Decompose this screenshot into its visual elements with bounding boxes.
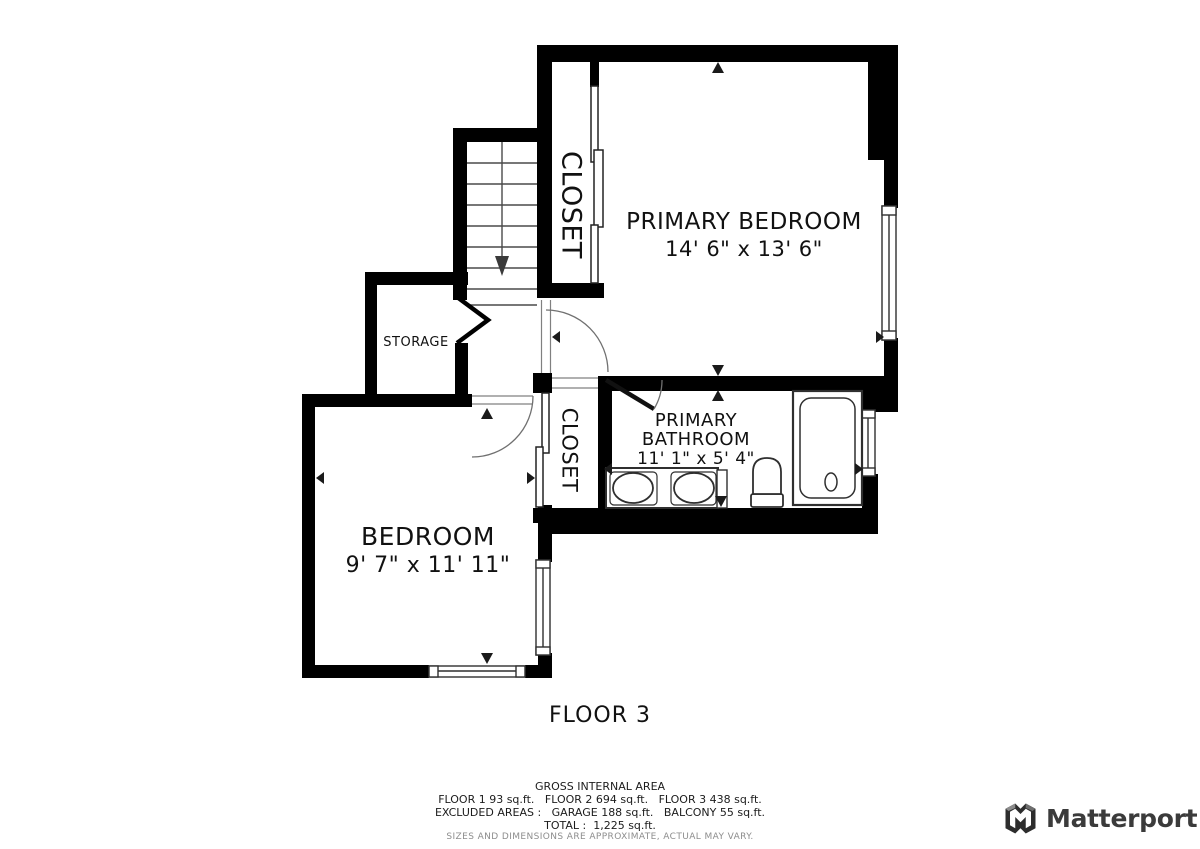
door-closet-lower-sliding xyxy=(536,393,549,507)
floor-title: FLOOR 3 xyxy=(0,703,1200,728)
door-closet-upper-sliding xyxy=(591,86,603,283)
sink-right xyxy=(674,473,714,503)
area-summary-title: GROSS INTERNAL AREA xyxy=(0,780,1200,793)
stairs-direction-arrow xyxy=(495,256,509,276)
bedroom-label: BEDROOM xyxy=(361,522,495,551)
window-primary-bedroom-right xyxy=(882,206,896,340)
arrow-up-icon xyxy=(712,390,724,401)
vanity-double-sink xyxy=(606,468,727,508)
window-bedroom-right xyxy=(536,560,550,655)
storage-label: STORAGE xyxy=(383,335,448,350)
closet-lower-label: CLOSET xyxy=(558,408,582,493)
matterport-logo-text: Matterport xyxy=(1046,804,1197,833)
primary-bathroom-dimensions: 11' 1" x 5' 4" xyxy=(637,449,755,469)
arrow-left-icon xyxy=(552,331,560,343)
arrow-left-icon xyxy=(316,472,324,484)
door-storage-bifold xyxy=(457,297,488,343)
primary-bedroom-label: PRIMARY BEDROOM xyxy=(626,209,862,235)
matterport-logo: Matterport xyxy=(1004,802,1197,835)
arrow-down-icon xyxy=(712,365,724,376)
door-bedroom xyxy=(472,396,533,457)
primary-bathroom-label-line2: BATHROOM xyxy=(642,429,750,450)
matterport-logo-icon xyxy=(1004,802,1037,835)
primary-bathroom-label-line1: PRIMARY xyxy=(655,410,738,431)
arrow-up-icon xyxy=(712,62,724,73)
primary-bedroom-dimensions: 14' 6" x 13' 6" xyxy=(665,237,823,261)
toilet xyxy=(751,458,783,507)
staircase xyxy=(467,142,537,305)
bathtub xyxy=(793,391,862,505)
closet-upper-label: CLOSET xyxy=(556,151,587,259)
arrow-right-icon xyxy=(527,472,535,484)
arrow-down-icon xyxy=(481,653,493,664)
sink-left xyxy=(613,473,653,503)
bathtub-faucet xyxy=(825,473,837,491)
floor-plan-page: PRIMARY BEDROOM 14' 6" x 13' 6" CLOSET S… xyxy=(0,0,1200,849)
walls xyxy=(302,45,898,678)
door-primary-bedroom xyxy=(542,300,609,373)
arrow-up-icon xyxy=(481,408,493,419)
window-bedroom-bottom xyxy=(429,666,525,677)
bedroom-dimensions: 9' 7" x 11' 11" xyxy=(346,553,511,578)
